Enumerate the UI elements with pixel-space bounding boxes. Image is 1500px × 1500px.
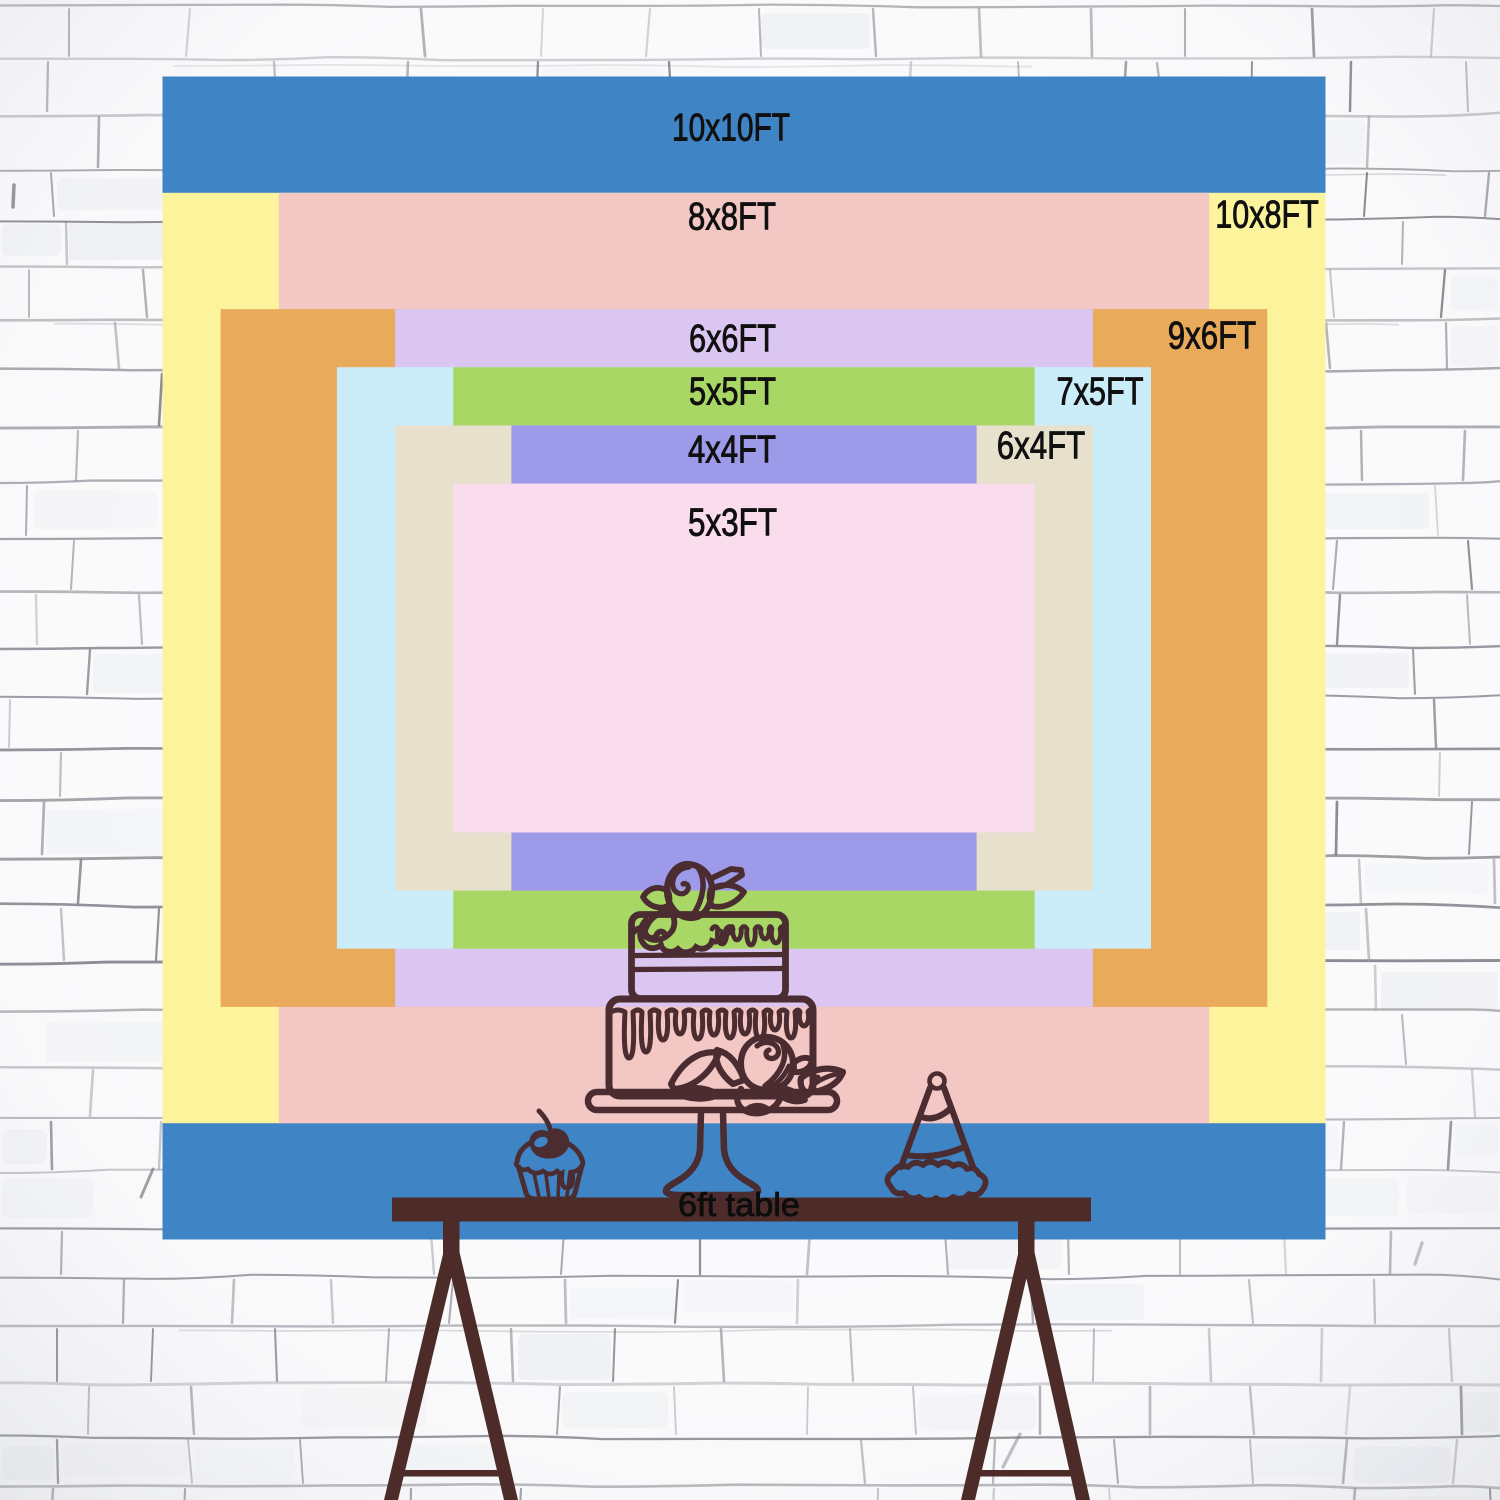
- svg-text:9x6FT: 9x6FT: [1168, 315, 1257, 358]
- svg-text:6x6FT: 6x6FT: [689, 318, 776, 361]
- svg-text:5x5FT: 5x5FT: [689, 371, 776, 414]
- svg-text:4x4FT: 4x4FT: [688, 429, 776, 472]
- svg-text:8x8FT: 8x8FT: [688, 196, 776, 239]
- svg-text:6x4FT: 6x4FT: [997, 425, 1086, 468]
- svg-text:10x10FT: 10x10FT: [672, 107, 790, 150]
- svg-text:6ft table: 6ft table: [678, 1186, 800, 1223]
- svg-text:7x5FT: 7x5FT: [1057, 371, 1144, 414]
- svg-text:10x8FT: 10x8FT: [1215, 194, 1319, 237]
- svg-text:5x3FT: 5x3FT: [688, 502, 777, 545]
